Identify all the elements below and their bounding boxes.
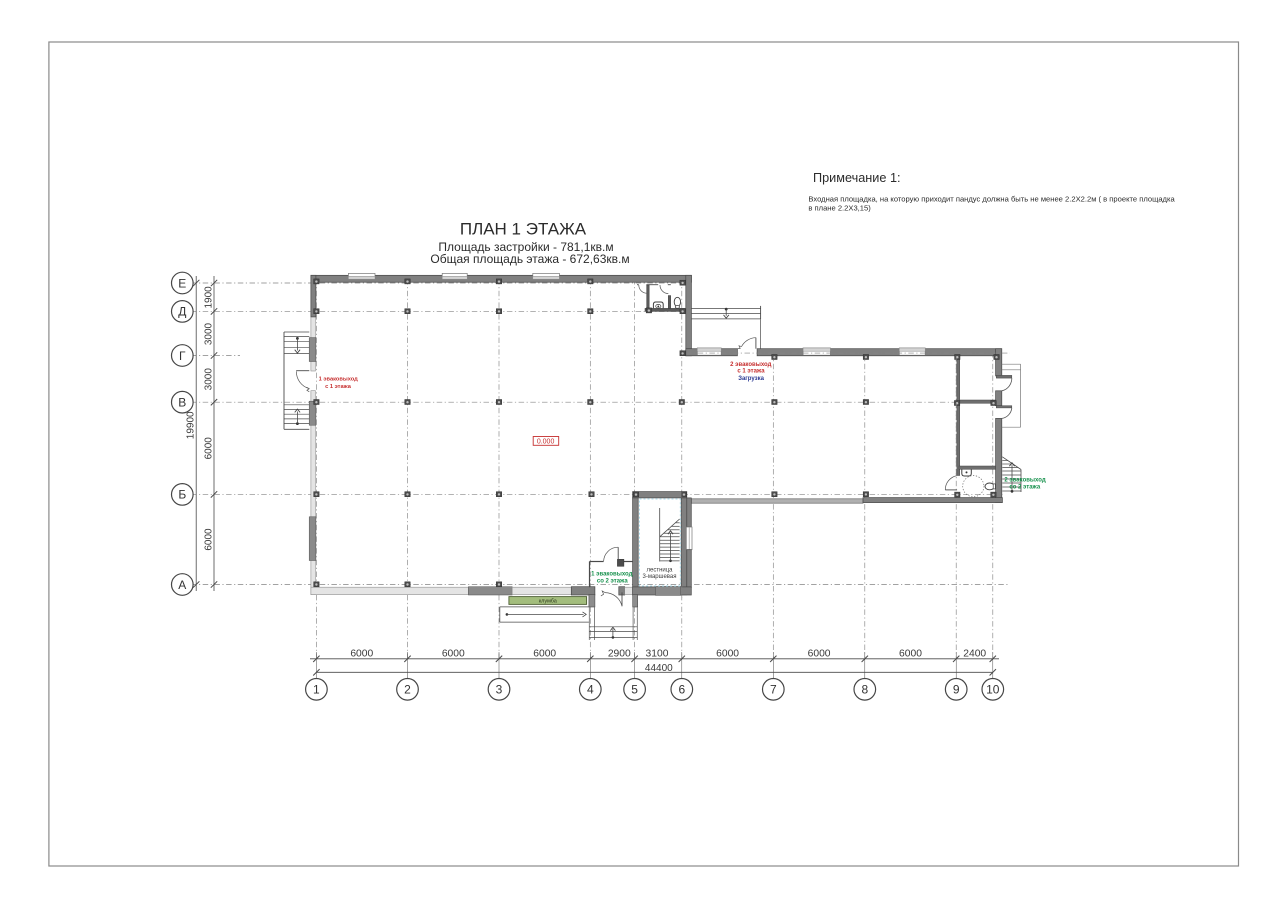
svg-text:7: 7 bbox=[770, 683, 777, 697]
svg-text:1: 1 bbox=[313, 683, 320, 697]
svg-text:2 эваковыход: 2 эваковыход bbox=[1004, 477, 1045, 483]
svg-text:8: 8 bbox=[861, 683, 868, 697]
svg-text:клумба: клумба bbox=[539, 599, 558, 605]
svg-text:6000: 6000 bbox=[350, 648, 373, 659]
svg-text:0.000: 0.000 bbox=[537, 438, 555, 445]
svg-text:2 эваковыход: 2 эваковыход bbox=[730, 362, 771, 368]
svg-text:6000: 6000 bbox=[204, 528, 215, 551]
svg-text:Е: Е bbox=[178, 276, 186, 290]
svg-text:6000: 6000 bbox=[442, 648, 465, 659]
svg-text:со 2 этажа: со 2 этажа bbox=[597, 579, 629, 585]
svg-text:2900: 2900 bbox=[608, 648, 631, 659]
svg-text:5: 5 bbox=[631, 683, 638, 697]
svg-text:со 2 этажа: со 2 этажа bbox=[1009, 484, 1041, 490]
svg-text:Г: Г bbox=[179, 349, 186, 363]
svg-text:6000: 6000 bbox=[533, 648, 556, 659]
svg-text:Б: Б bbox=[178, 488, 186, 502]
svg-text:3100: 3100 bbox=[646, 648, 669, 659]
svg-text:3: 3 bbox=[496, 683, 503, 697]
svg-text:19900: 19900 bbox=[186, 411, 197, 439]
svg-text:в плане 2.2X3,15): в плане 2.2X3,15) bbox=[808, 204, 871, 213]
svg-text:с 1 этажа: с 1 этажа bbox=[737, 369, 765, 375]
svg-text:6: 6 bbox=[678, 683, 685, 697]
svg-text:ПЛАН 1 ЭТАЖА: ПЛАН 1 ЭТАЖА bbox=[460, 220, 587, 239]
svg-text:10: 10 bbox=[986, 683, 1000, 697]
svg-text:В: В bbox=[178, 396, 186, 410]
svg-text:4: 4 bbox=[587, 683, 594, 697]
svg-text:Примечание 1:: Примечание 1: bbox=[813, 171, 901, 185]
svg-text:1 эваковыход: 1 эваковыход bbox=[591, 571, 632, 577]
svg-text:2: 2 bbox=[404, 683, 411, 697]
svg-text:с 1 этажа: с 1 этажа bbox=[325, 384, 352, 390]
svg-text:6000: 6000 bbox=[899, 648, 922, 659]
svg-text:1 эваковыход: 1 эваковыход bbox=[319, 377, 358, 383]
svg-text:6000: 6000 bbox=[716, 648, 739, 659]
svg-text:лестница: лестница bbox=[646, 568, 673, 574]
svg-text:Д: Д bbox=[178, 305, 186, 319]
svg-text:Входная площадка, на которую п: Входная площадка, на которую приходит па… bbox=[808, 195, 1175, 204]
svg-text:3-маршевая: 3-маршевая bbox=[643, 574, 677, 580]
svg-text:1900: 1900 bbox=[204, 286, 215, 309]
svg-text:3000: 3000 bbox=[204, 368, 215, 391]
svg-text:3000: 3000 bbox=[204, 322, 215, 345]
svg-text:44400: 44400 bbox=[645, 663, 673, 674]
svg-text:6000: 6000 bbox=[204, 437, 215, 460]
svg-text:Загрузка: Загрузка bbox=[738, 376, 764, 382]
svg-text:6000: 6000 bbox=[808, 648, 831, 659]
svg-text:Общая площадь этажа - 672,63к: Общая площадь этажа - 672,63кв.м bbox=[430, 252, 629, 266]
svg-text:9: 9 bbox=[953, 683, 960, 697]
svg-text:А: А bbox=[178, 578, 186, 592]
svg-text:2400: 2400 bbox=[963, 648, 986, 659]
